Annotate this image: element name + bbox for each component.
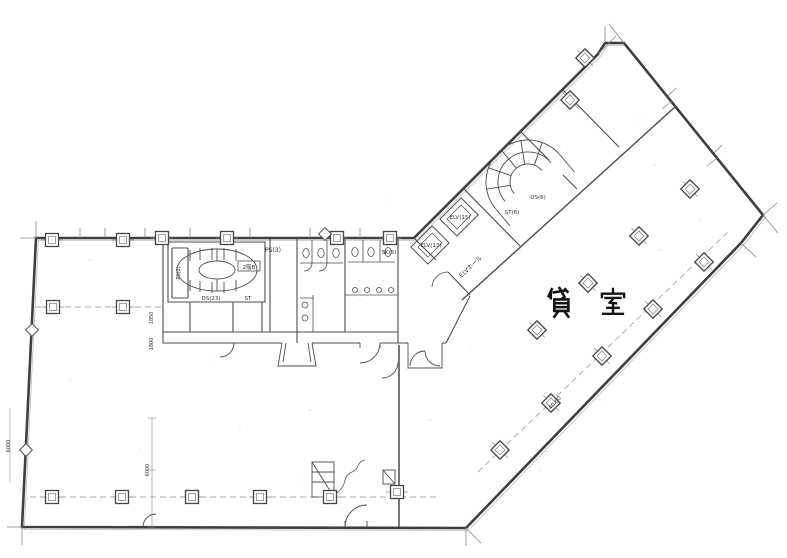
column-marker [41,234,63,247]
column-marker [112,301,134,314]
kashi-shitsu-label [549,288,625,317]
column-marker [111,491,133,504]
column-marker [112,234,134,247]
label-st6: ST(6) [505,210,520,216]
column-marker [488,438,513,463]
column-marker [576,271,601,296]
door-diamond-icon [20,444,33,457]
column-marker [41,491,63,504]
columns [20,46,717,504]
column-marker [627,224,652,249]
dimension-labels: 1850 1800 6000 6000 40.60 [6,312,563,477]
dim-6000b: 6000 [6,440,12,453]
dim-1850: 1850 [149,312,155,325]
column-marker [181,491,203,504]
core-walls [163,90,676,527]
dim-1800: 1800 [149,338,155,351]
floor-plan-page: PS(2) DS(23) ST 2階B PS(3) SK(5) ELV(13) … [0,0,787,558]
column-marker [678,177,703,202]
room-labels: PS(2) DS(23) ST 2階B PS(3) SK(5) ELV(13) … [176,195,546,302]
label-elv2: ELV(15) [450,215,471,221]
label-stair-b: 2階B [243,263,256,271]
label-ps2: PS(2) [176,266,182,279]
column-marker [525,318,550,343]
column-marker [573,46,598,71]
dimension-ticks [7,24,778,546]
label-elv-hall: ELVホール [458,255,484,280]
kanji-shitsu [602,289,624,314]
building-outline [22,43,765,530]
column-marker [641,297,666,322]
label-sk5: SK(5) [382,250,397,256]
column-marker [386,486,408,499]
label-ds23: DS(23) [201,296,220,302]
column-marker [42,301,64,314]
label-elv1: ELV(13) [421,243,442,249]
dim-6000: 6000 [145,464,151,477]
label-ds6: DS(6) [530,195,546,201]
label-ps3: PS(3) [265,247,281,254]
door-diamond-icon [26,324,39,337]
floor-plan-drawing: PS(2) DS(23) ST 2階B PS(3) SK(5) ELV(13) … [0,0,787,558]
kanji-kashi [549,288,569,317]
column-marker [249,491,271,504]
column-marker [590,344,615,369]
label-st: ST [245,296,252,302]
scan-noise [69,119,721,501]
